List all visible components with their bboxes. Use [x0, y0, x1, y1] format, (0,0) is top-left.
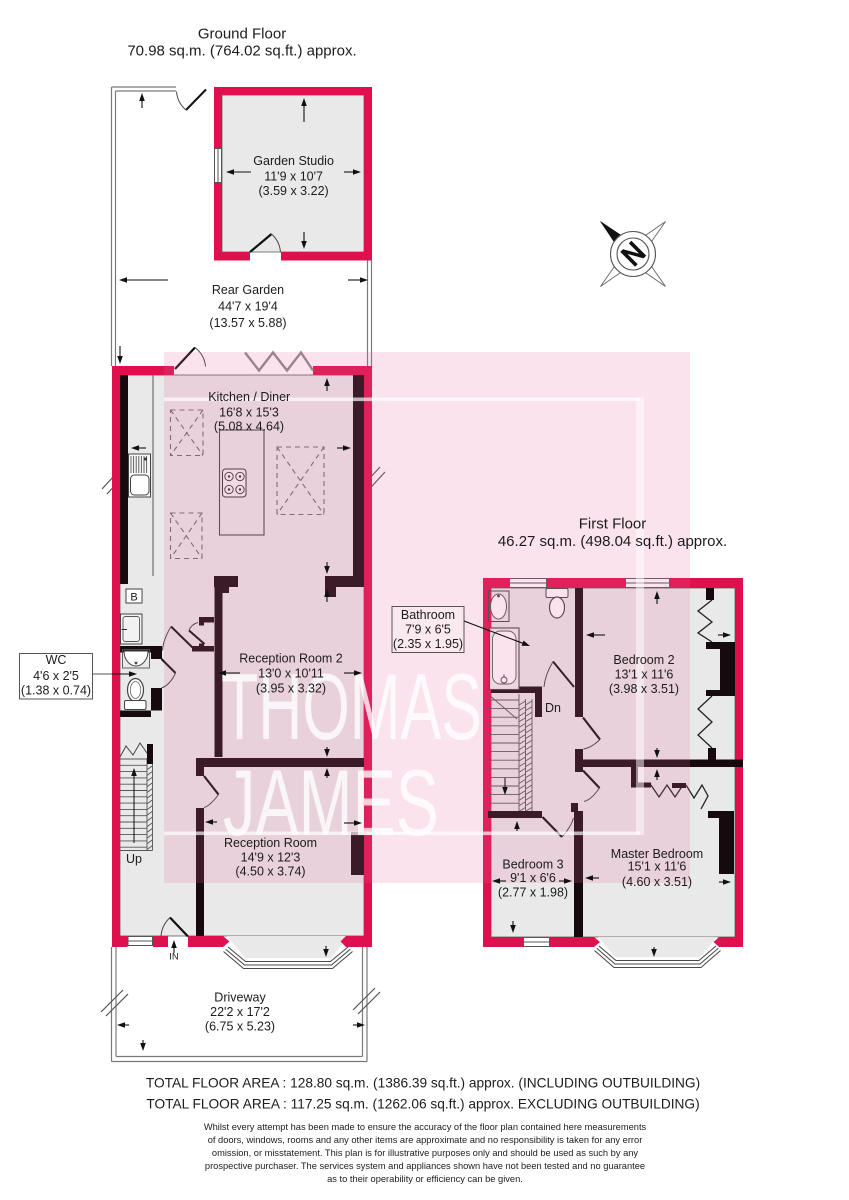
svg-text:(5.08 x 4.64): (5.08 x 4.64): [214, 420, 284, 434]
svg-text:11'9 x 10'7: 11'9 x 10'7: [264, 170, 323, 184]
svg-text:IN: IN: [169, 952, 179, 963]
svg-text:First Floor: First Floor: [579, 516, 647, 533]
svg-text:16'8 x 15'3: 16'8 x 15'3: [219, 406, 279, 420]
svg-text:13'1 x 11'6: 13'1 x 11'6: [615, 668, 674, 682]
svg-text:Kitchen / Diner: Kitchen / Diner: [208, 390, 290, 404]
svg-text:(3.59 x 3.22): (3.59 x 3.22): [259, 184, 329, 198]
svg-text:TOTAL FLOOR AREA : 128.80 sq.m: TOTAL FLOOR AREA : 128.80 sq.m. (1386.39…: [146, 1076, 700, 1091]
svg-text:13'0 x 10'11: 13'0 x 10'11: [258, 667, 324, 681]
svg-text:(2.77 x 1.98): (2.77 x 1.98): [498, 886, 568, 900]
svg-text:Bedroom 3: Bedroom 3: [502, 857, 563, 871]
svg-text:B: B: [130, 592, 137, 604]
svg-text:as to their operability or eff: as to their operability or efficiency ca…: [327, 1174, 523, 1184]
svg-text:46.27 sq.m. (498.04 sq.ft.) ap: 46.27 sq.m. (498.04 sq.ft.) approx.: [498, 533, 727, 550]
svg-text:Whilst every attempt has been: Whilst every attempt has been made to en…: [204, 1122, 647, 1132]
svg-text:Dn: Dn: [545, 701, 561, 715]
svg-text:TOTAL FLOOR AREA : 117.25 sq.m: TOTAL FLOOR AREA : 117.25 sq.m. (1262.06…: [146, 1097, 699, 1112]
svg-text:(6.75 x 5.23): (6.75 x 5.23): [205, 1020, 275, 1034]
svg-text:9'1 x 6'6: 9'1 x 6'6: [510, 871, 556, 885]
svg-text:omission, or misstatement. Thi: omission, or misstatement. This plan is …: [212, 1148, 639, 1158]
svg-text:Reception Room 2: Reception Room 2: [239, 651, 343, 665]
svg-text:(4.50 x 3.74): (4.50 x 3.74): [235, 865, 305, 879]
svg-text:(1.38 x 0.74): (1.38 x 0.74): [21, 683, 91, 697]
svg-text:4'6 x 2'5: 4'6 x 2'5: [33, 669, 79, 683]
svg-text:Garden Studio: Garden Studio: [253, 154, 334, 168]
svg-text:prospective purchaser. The ser: prospective purchaser. The services syst…: [205, 1161, 645, 1171]
svg-text:(4.60 x 3.51): (4.60 x 3.51): [622, 875, 692, 889]
svg-text:Bathroom: Bathroom: [401, 608, 455, 622]
svg-text:Rear Garden: Rear Garden: [212, 283, 284, 297]
svg-text:Reception Room: Reception Room: [224, 836, 317, 850]
svg-text:(3.98 x 3.51): (3.98 x 3.51): [609, 682, 679, 696]
svg-text:Up: Up: [126, 852, 142, 866]
svg-text:(13.57 x 5.88): (13.57 x 5.88): [209, 316, 286, 330]
svg-text:15'1 x 11'6: 15'1 x 11'6: [628, 860, 687, 874]
svg-text:(3.95 x 3.32): (3.95 x 3.32): [256, 682, 326, 696]
svg-text:Ground Floor: Ground Floor: [198, 25, 286, 42]
svg-text:22'2 x 17'2: 22'2 x 17'2: [210, 1005, 270, 1019]
svg-text:Bedroom 2: Bedroom 2: [613, 653, 674, 667]
svg-text:14'9 x 12'3: 14'9 x 12'3: [241, 850, 301, 864]
svg-text:of doors, windows, rooms and a: of doors, windows, rooms and any other i…: [208, 1135, 643, 1145]
svg-text:(2.35 x 1.95): (2.35 x 1.95): [393, 637, 463, 651]
svg-text:70.98 sq.m. (764.02 sq.ft.) ap: 70.98 sq.m. (764.02 sq.ft.) approx.: [127, 42, 356, 59]
svg-text:WC: WC: [46, 653, 67, 667]
svg-text:44'7 x 19'4: 44'7 x 19'4: [218, 300, 278, 314]
svg-text:7'9 x 6'5: 7'9 x 6'5: [405, 623, 451, 637]
svg-text:Driveway: Driveway: [214, 991, 266, 1005]
